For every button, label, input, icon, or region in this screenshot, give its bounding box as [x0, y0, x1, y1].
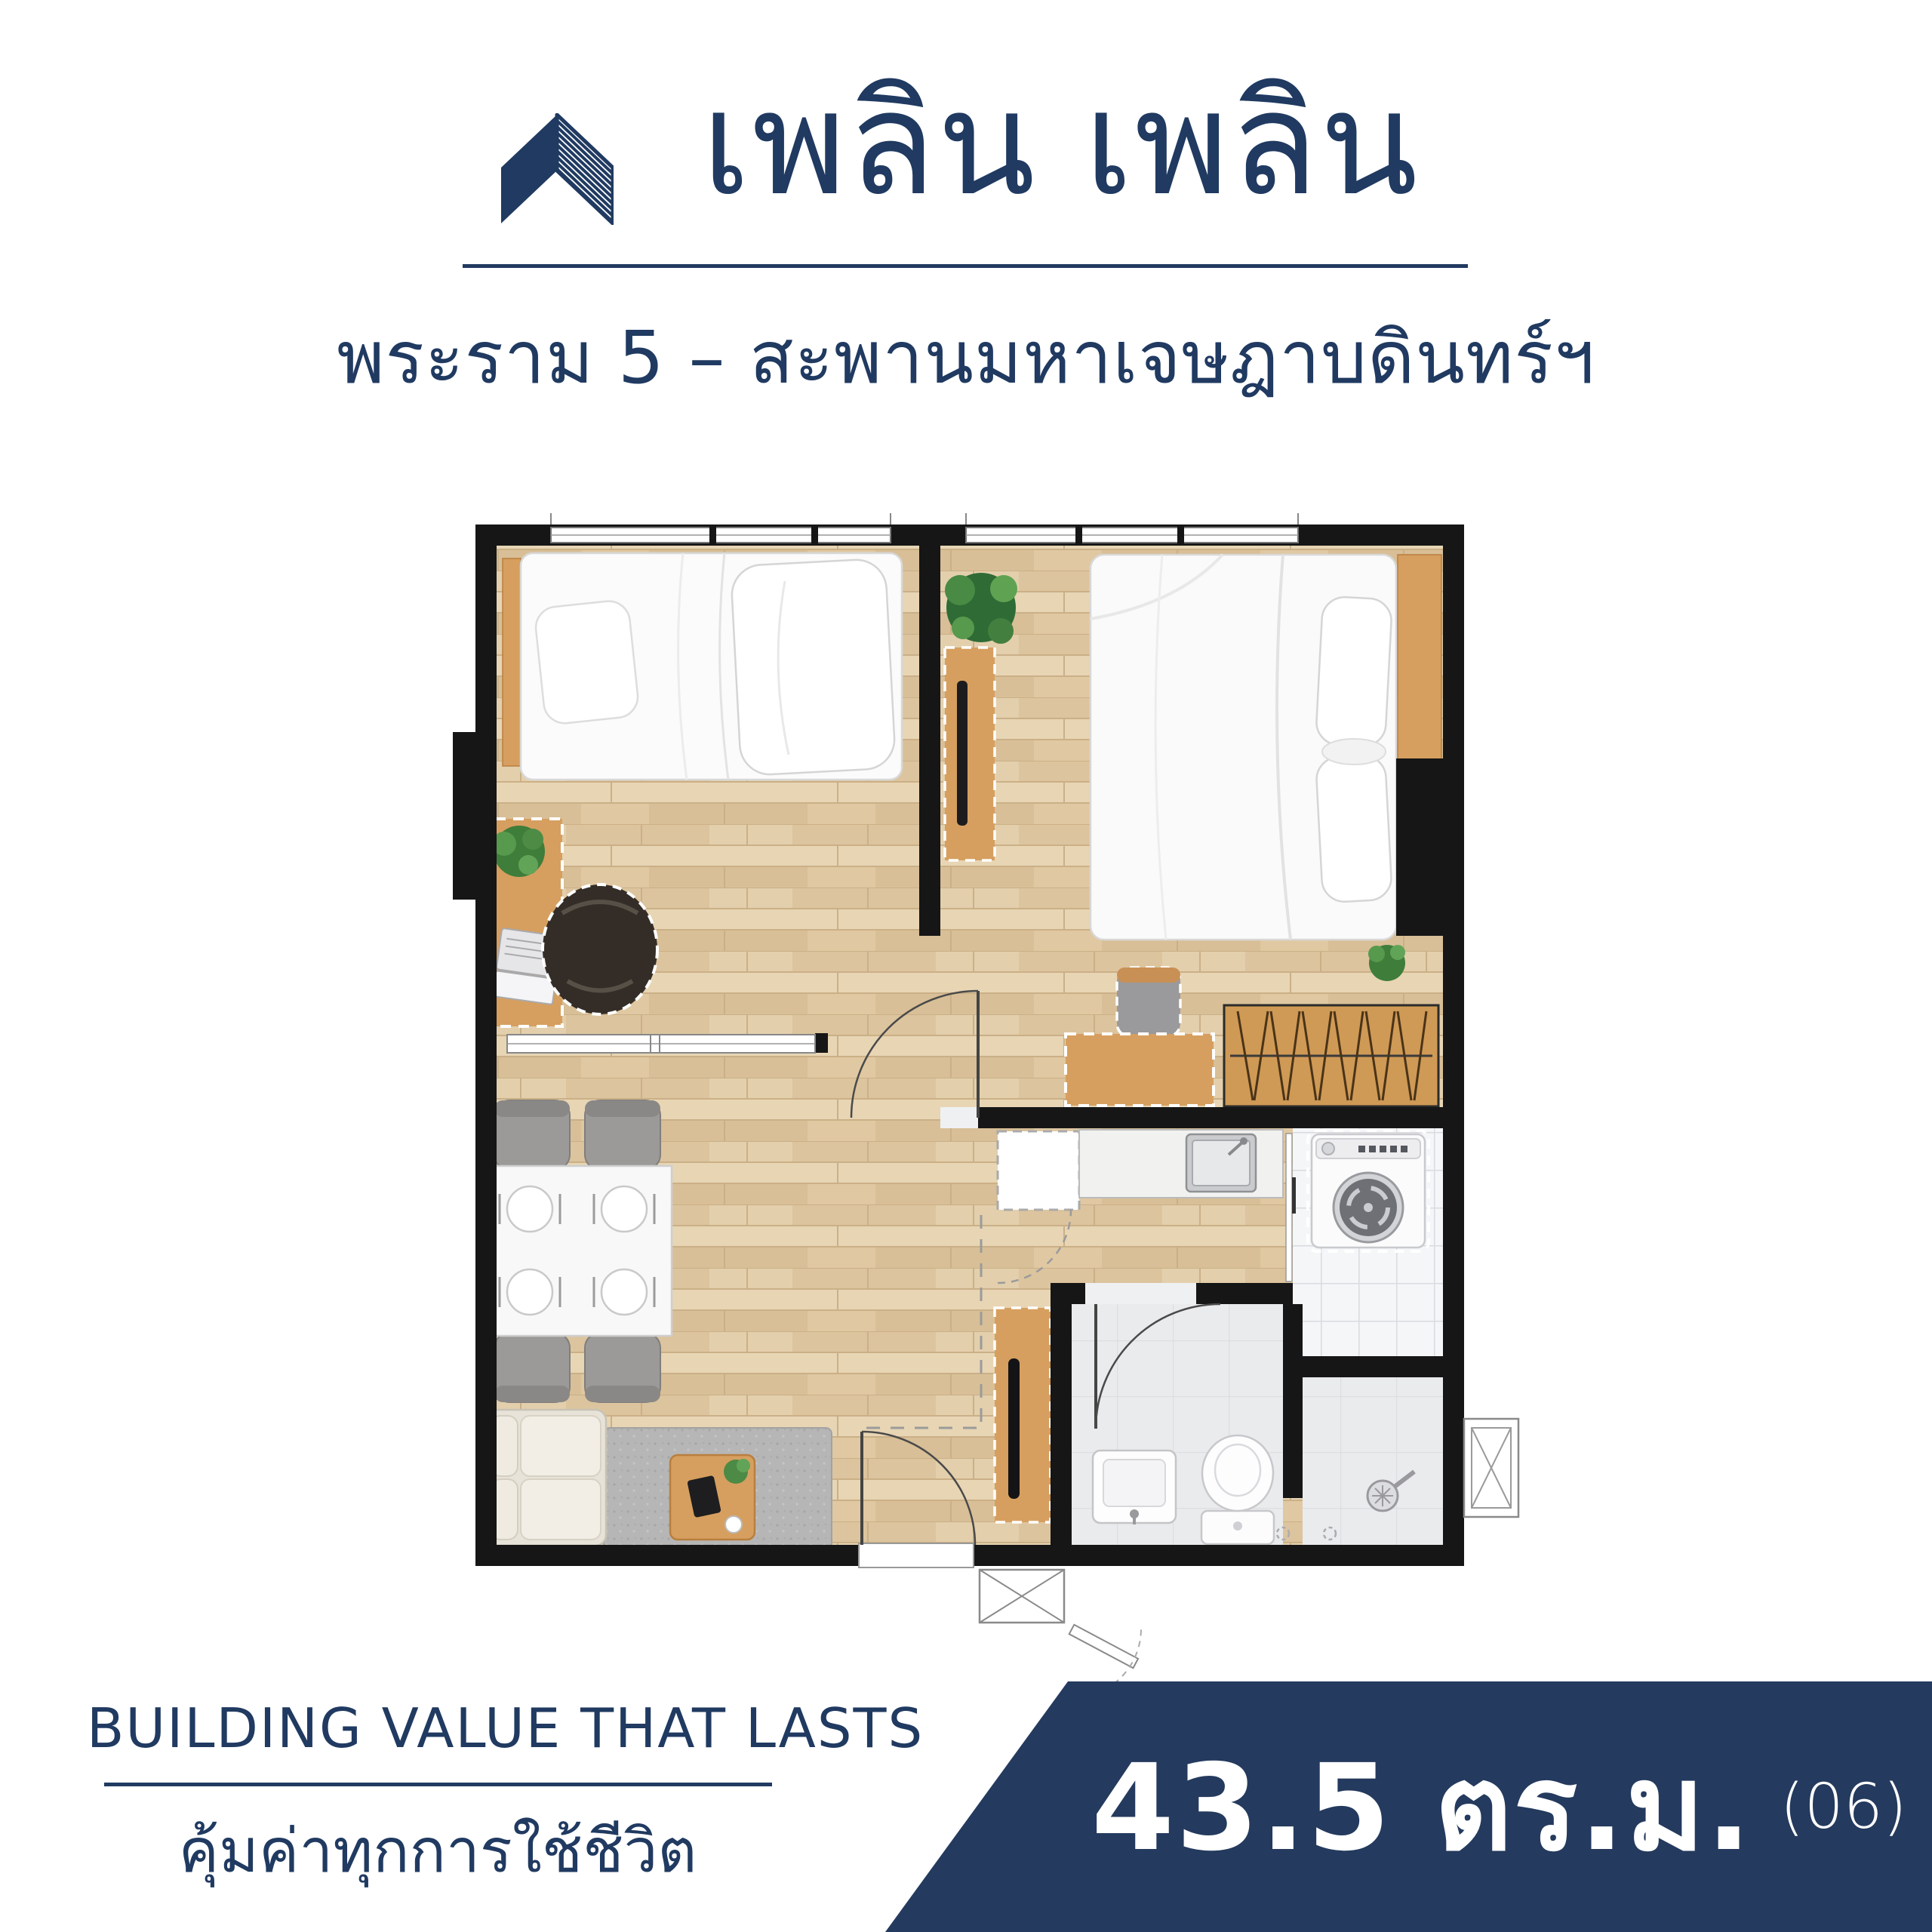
dining-chair [585, 1100, 660, 1170]
pillow [534, 599, 640, 725]
poster: เพลิน เพลิน พระราม 5 – สะพานมหาเจษฎาบดิน… [0, 0, 1932, 1932]
double-bed [1091, 555, 1396, 940]
wash-basin [1093, 1451, 1176, 1524]
wall-bedroom-divider [919, 546, 940, 936]
wall-right [1443, 525, 1464, 1566]
wall-bath-left [1051, 1304, 1072, 1545]
pillow [1315, 755, 1392, 903]
shower-floor [1303, 1377, 1443, 1545]
air-conditioner-unit-icon [1464, 1419, 1518, 1517]
cup [725, 1516, 742, 1533]
dining-chair [494, 1100, 570, 1170]
footer-taglines: BUILDING VALUE THAT LASTS คุ้มค่าทุกการใ… [87, 1697, 789, 1899]
single-bed [521, 553, 902, 780]
pillow [1315, 596, 1392, 748]
tagline-th: คุ้มค่าทุกการใช้ชีวิต [87, 1803, 789, 1899]
condenser-unit-icon [980, 1570, 1064, 1623]
monstera-plant-icon [945, 573, 1017, 644]
tagline-en: BUILDING VALUE THAT LASTS [87, 1697, 789, 1760]
wall-bath-top-b [1196, 1283, 1293, 1304]
dressing-desk [1066, 1034, 1214, 1106]
tv-icon [1008, 1358, 1020, 1499]
wall-stub [815, 1033, 828, 1053]
wardrobe [1224, 1005, 1438, 1106]
unit-number: (06) [1780, 1771, 1907, 1843]
bed-bench [503, 558, 521, 766]
wall-left [475, 525, 497, 1566]
washing-machine-icon [1308, 1131, 1429, 1251]
office-chair [543, 884, 657, 1014]
dining-table [483, 1166, 672, 1336]
wall-bottom-right [974, 1545, 1464, 1566]
wall-bottom-left [475, 1545, 859, 1566]
wall-bath-top-a [1051, 1283, 1085, 1304]
sofa [487, 1410, 606, 1546]
area-value: 43.5 ตร.ม. [1091, 1712, 1753, 1902]
pillow [731, 558, 896, 776]
tv-icon [957, 681, 968, 826]
wall-jog [453, 732, 497, 900]
tagline-divider [104, 1783, 772, 1786]
door-handle [1292, 1177, 1296, 1214]
floor-plan [0, 0, 1932, 1932]
kitchen-sink [1186, 1134, 1256, 1192]
dressing-chair [1117, 968, 1180, 1037]
refrigerator [998, 1131, 1079, 1210]
wall-niche [1396, 758, 1443, 936]
wall-bath-inner [1283, 1304, 1303, 1498]
coffee-table [670, 1455, 755, 1540]
toilet [1201, 1435, 1274, 1544]
wall-under-tile [1293, 1356, 1443, 1377]
wall-bedroom2-bottom [978, 1107, 1443, 1128]
headboard [1398, 555, 1441, 760]
dining-chair [585, 1333, 660, 1402]
area-banner: 43.5 ตร.ม. (06) [885, 1681, 1932, 1932]
dining-chair [494, 1333, 570, 1402]
bedroom2-tv-console [945, 648, 995, 860]
living-tv-console [995, 1308, 1051, 1522]
